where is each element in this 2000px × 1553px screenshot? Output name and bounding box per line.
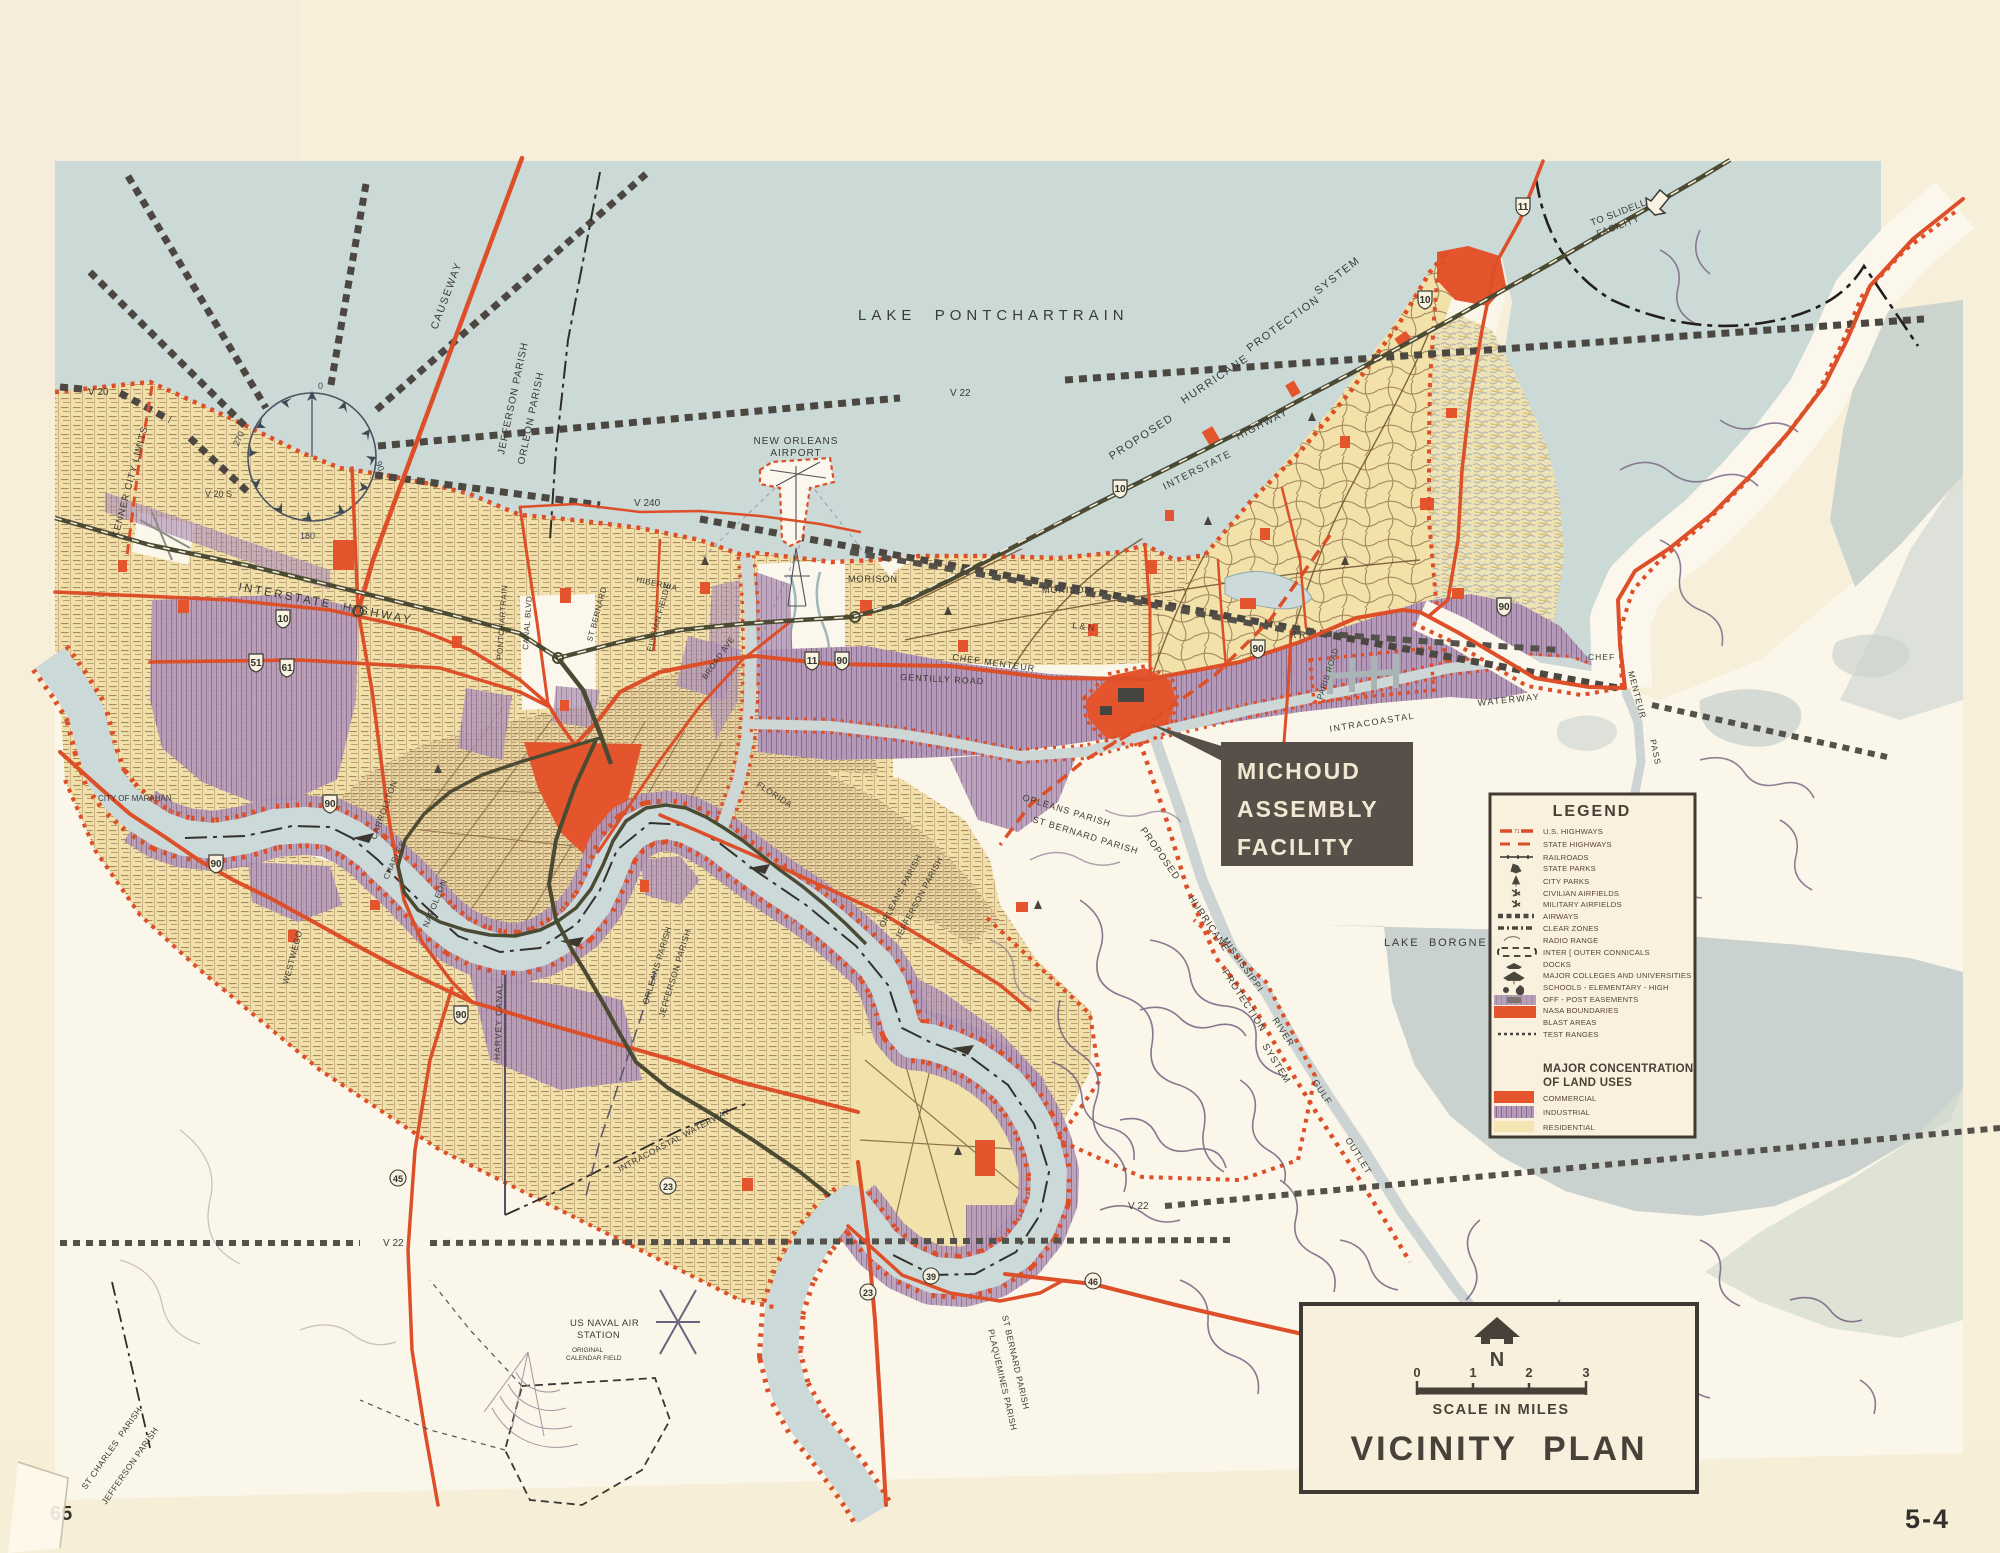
svg-text:39: 39: [926, 1272, 936, 1282]
svg-text:N: N: [1490, 1349, 1504, 1371]
svg-text:CITY PARKS: CITY PARKS: [1543, 877, 1589, 886]
svg-text:V 240: V 240: [634, 498, 661, 509]
svg-text:NEW ORLEANS: NEW ORLEANS: [754, 436, 839, 447]
svg-text:MAJOR COLLEGES AND UNIVERSI: MAJOR COLLEGES AND UNIVERSITIES: [1543, 971, 1691, 980]
svg-text:VICINITY PLAN: VICINITY PLAN: [1350, 1430, 1647, 1468]
svg-text:90: 90: [1498, 602, 1510, 613]
svg-text:US NAVAL AIR: US NAVAL AIR: [570, 1318, 639, 1329]
svg-text:MICHOUD: MICHOUD: [1237, 758, 1361, 784]
svg-text:STATE HIGHWAYS: STATE HIGHWAYS: [1543, 840, 1612, 849]
svg-text:AIRPORT: AIRPORT: [770, 448, 821, 459]
svg-text:3: 3: [1582, 1365, 1589, 1380]
svg-text:45: 45: [393, 1174, 403, 1184]
svg-text:INDUSTRIAL: INDUSTRIAL: [1543, 1108, 1590, 1117]
svg-text:90: 90: [455, 1010, 467, 1021]
svg-text:MILITARY AIRFIELDS: MILITARY AIRFIELDS: [1543, 900, 1622, 909]
svg-text:STATE PARKS: STATE PARKS: [1543, 864, 1596, 873]
svg-text:LAKE PONTCHARTRAIN: LAKE PONTCHARTRAIN: [858, 307, 1129, 324]
svg-text:LAKE BORGNE: LAKE BORGNE: [1384, 937, 1488, 949]
svg-text:OF LAND USES: OF LAND USES: [1543, 1077, 1632, 1089]
svg-text:90: 90: [1252, 644, 1264, 655]
svg-text:ORIGINAL: ORIGINAL: [572, 1347, 603, 1354]
svg-text:10: 10: [277, 614, 289, 625]
svg-text:11: 11: [1518, 202, 1529, 213]
svg-text:STATION: STATION: [577, 1330, 620, 1341]
svg-text:23: 23: [663, 1182, 673, 1192]
svg-text:61: 61: [281, 663, 293, 674]
svg-text:ASSEMBLY: ASSEMBLY: [1237, 796, 1379, 822]
svg-text:CHEF: CHEF: [1588, 652, 1615, 662]
svg-text:V 22: V 22: [950, 388, 971, 399]
svg-text:SCHOOLS - ELEMENTARY - HIGH: SCHOOLS - ELEMENTARY - HIGH: [1543, 983, 1669, 992]
svg-text:U.S. HIGHWAYS: U.S. HIGHWAYS: [1543, 827, 1603, 836]
svg-text:INTER [ OUTER CONNICALS: INTER [ OUTER CONNICALS: [1543, 948, 1650, 957]
svg-text:R R: R R: [1290, 630, 1306, 640]
svg-text:V 22: V 22: [383, 1238, 404, 1249]
svg-text:CALENDAR FIELD: CALENDAR FIELD: [566, 1355, 622, 1362]
svg-text:COMMERCIAL: COMMERCIAL: [1543, 1094, 1596, 1103]
svg-text:46: 46: [1088, 1277, 1098, 1287]
svg-text:MORISON: MORISON: [848, 574, 898, 584]
svg-text:90: 90: [210, 859, 222, 870]
svg-text:CIVILIAN AIRFIELDS: CIVILIAN AIRFIELDS: [1543, 889, 1619, 898]
svg-text:RESIDENTIAL: RESIDENTIAL: [1543, 1123, 1595, 1132]
svg-text:V 20 S: V 20 S: [205, 489, 232, 499]
svg-text:RAILROADS: RAILROADS: [1543, 853, 1589, 862]
svg-text:90: 90: [836, 656, 848, 667]
svg-text:AIRWAYS: AIRWAYS: [1543, 912, 1578, 921]
svg-text:TEST RANGES: TEST RANGES: [1543, 1030, 1599, 1039]
svg-text:MAJOR CONCENTRATION: MAJOR CONCENTRATION: [1543, 1063, 1694, 1075]
svg-text:0: 0: [1413, 1365, 1420, 1380]
svg-text:RADIO RANGE: RADIO RANGE: [1543, 936, 1598, 945]
svg-text:180: 180: [300, 531, 315, 541]
svg-text:90: 90: [324, 799, 336, 810]
svg-text:2: 2: [1525, 1365, 1532, 1380]
svg-text:OFF - POST EASEMENTS: OFF - POST EASEMENTS: [1543, 995, 1638, 1004]
svg-text:11: 11: [807, 656, 818, 667]
svg-text:V 22: V 22: [1128, 1201, 1149, 1212]
svg-text:CLEAR ZONES: CLEAR ZONES: [1543, 924, 1599, 933]
svg-text:NASA BOUNDARIES: NASA BOUNDARIES: [1543, 1006, 1619, 1015]
svg-text:5-4: 5-4: [1905, 1504, 1950, 1534]
svg-text:LEGEND: LEGEND: [1553, 803, 1632, 820]
svg-text:V 20: V 20: [88, 387, 109, 398]
svg-text:10: 10: [1114, 484, 1126, 495]
svg-text:FACILITY: FACILITY: [1237, 834, 1355, 860]
svg-text:0: 0: [318, 381, 323, 391]
svg-text:71: 71: [1514, 829, 1520, 835]
svg-text:51: 51: [250, 658, 262, 669]
svg-text:CITY OF MARAHAN: CITY OF MARAHAN: [98, 794, 172, 803]
svg-text:DOCKS: DOCKS: [1543, 960, 1571, 969]
svg-text:SCALE IN MILES: SCALE IN MILES: [1432, 1402, 1569, 1418]
svg-text:BLAST AREAS: BLAST AREAS: [1543, 1018, 1597, 1027]
svg-text:1: 1: [1469, 1365, 1476, 1380]
svg-text:MORISON: MORISON: [1042, 585, 1092, 595]
svg-text:23: 23: [863, 1288, 873, 1298]
svg-text:10: 10: [1419, 295, 1431, 306]
